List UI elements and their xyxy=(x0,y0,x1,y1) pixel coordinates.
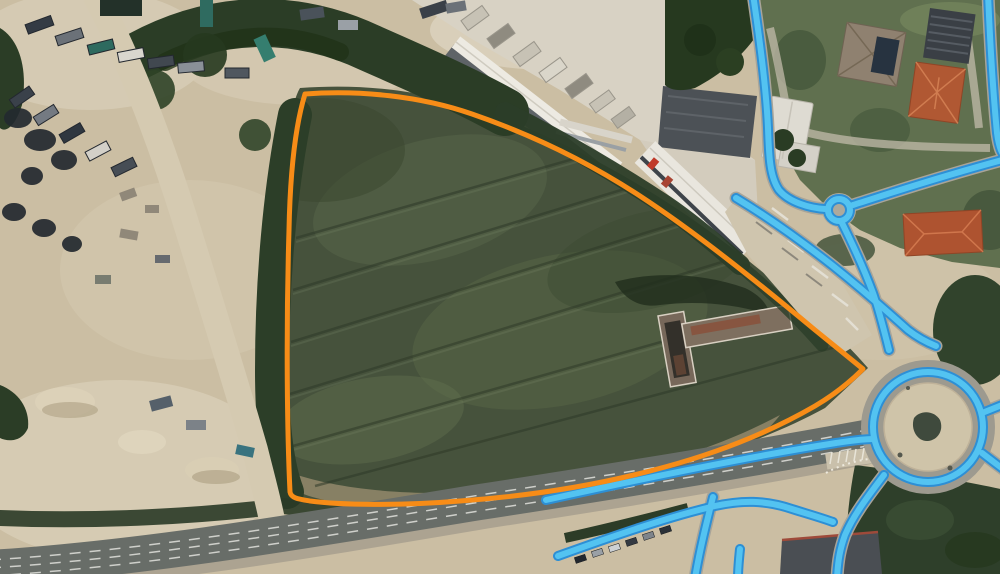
satellite-base xyxy=(0,0,1000,574)
satellite-map-view[interactable] xyxy=(0,0,1000,574)
south-stub-overlay xyxy=(738,549,740,574)
satellite-map[interactable] xyxy=(0,0,1000,574)
